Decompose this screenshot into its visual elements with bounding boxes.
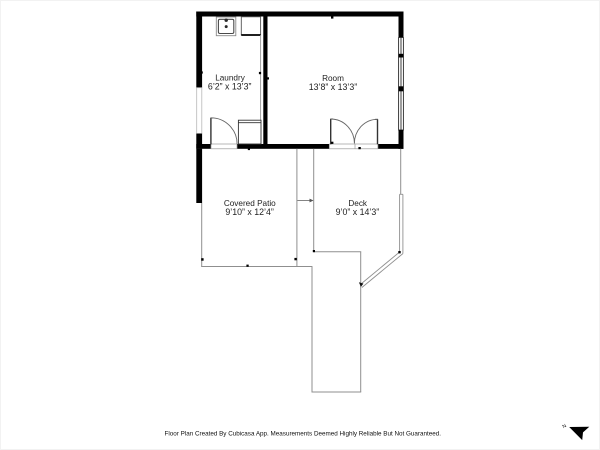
svg-text:9’0” x 14’3”: 9’0” x 14’3”: [336, 207, 380, 217]
svg-text:13’8” x 13’3”: 13’8” x 13’3”: [309, 82, 357, 92]
svg-text:6’2” x 13’3”: 6’2” x 13’3”: [208, 82, 252, 92]
svg-text:Floor Plan Created By Cubicasa: Floor Plan Created By Cubicasa App. Meas…: [165, 431, 442, 438]
svg-text:9’10” x 12’4”: 9’10” x 12’4”: [225, 207, 273, 217]
